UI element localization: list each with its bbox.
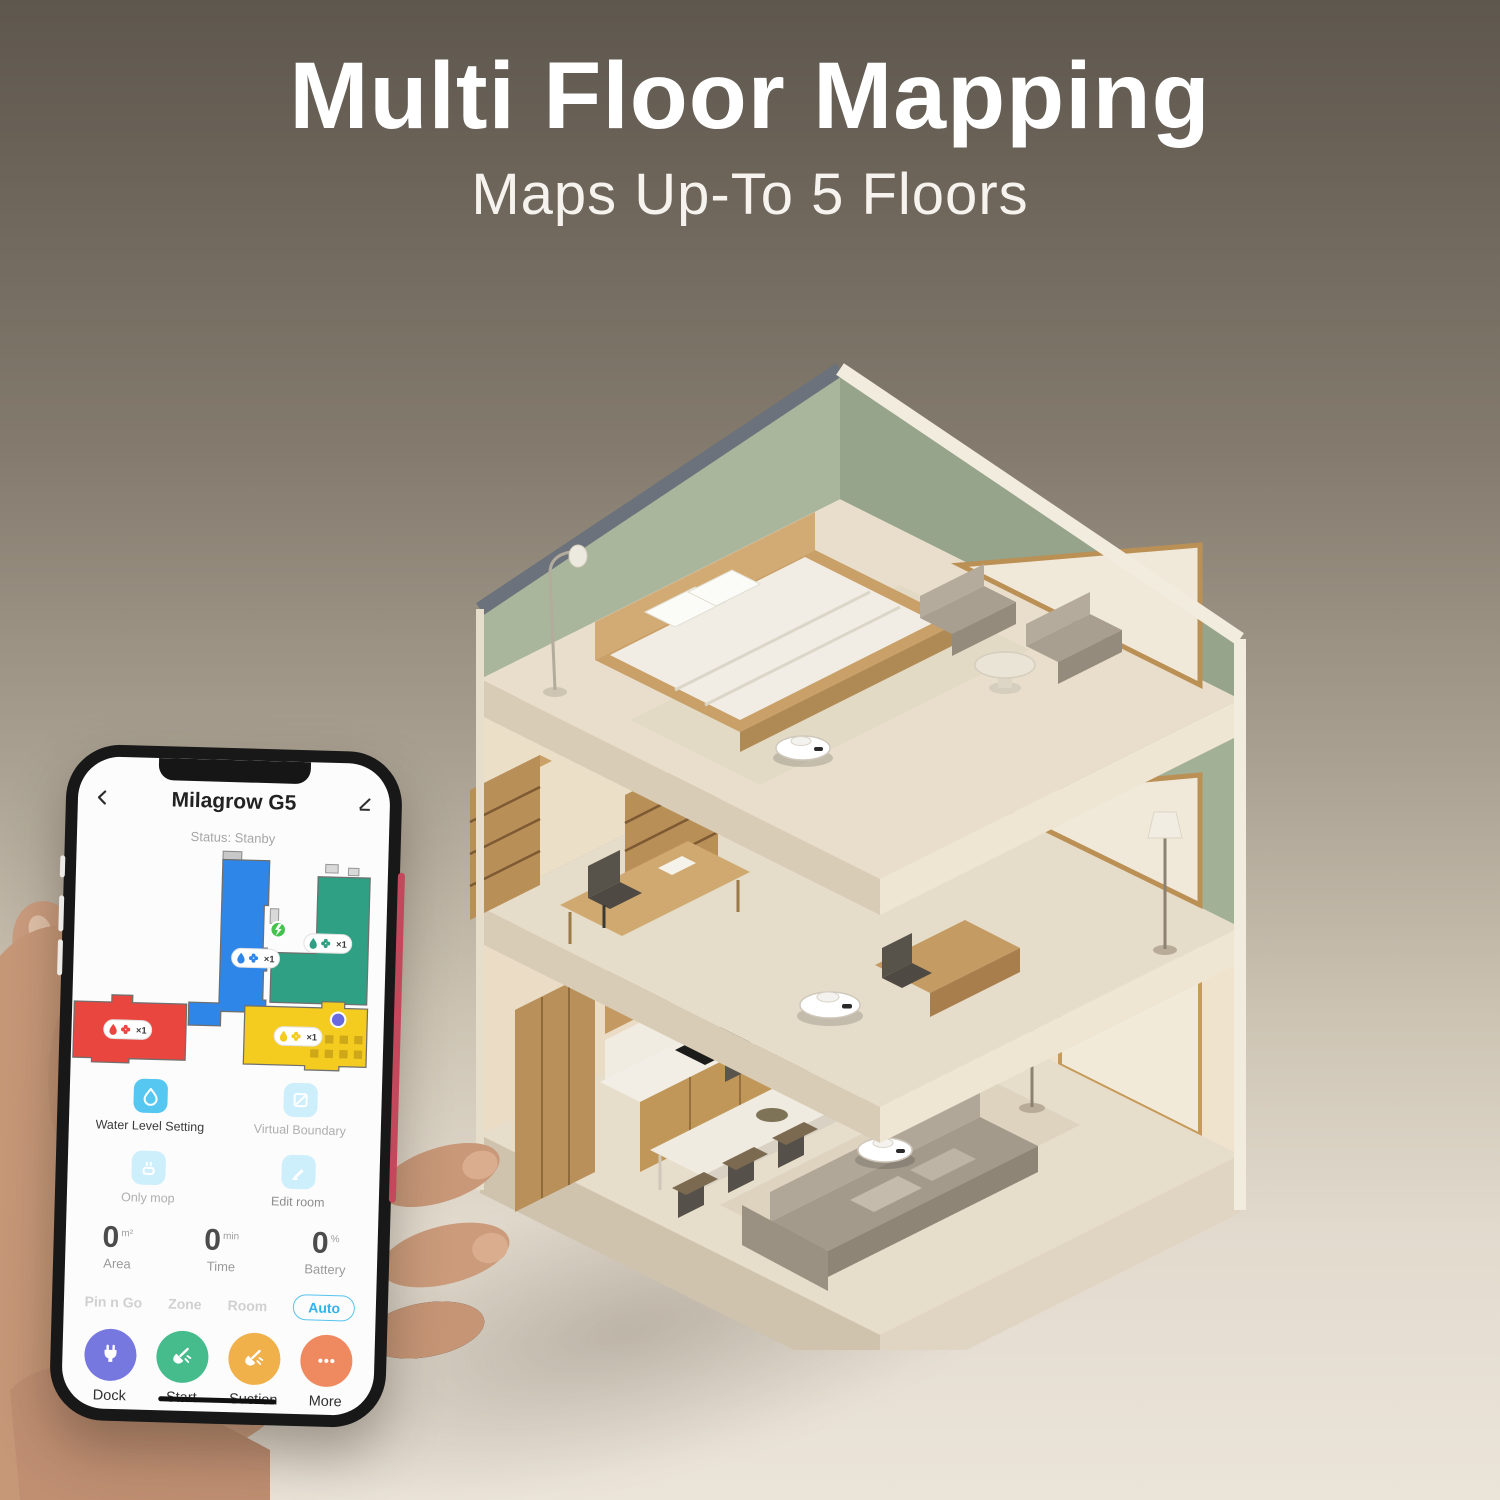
silent-switch[interactable] (60, 855, 66, 877)
back-button[interactable] (94, 788, 112, 806)
floor-map[interactable]: ×1 ×1 ×1 (70, 843, 388, 1077)
room-pill-yellow: ×1 (274, 1026, 322, 1046)
edit-pencil-icon (356, 796, 374, 814)
tab-pin-n-go[interactable]: Pin n Go (84, 1293, 142, 1311)
marketing-banner: Multi Floor Mapping Maps Up-To 5 Floors (0, 0, 1500, 1500)
room-pill-red: ×1 (104, 1020, 152, 1040)
action-edit-room[interactable]: Edit room (223, 1153, 374, 1213)
robot-vacuum-top (773, 736, 833, 767)
headline: Multi Floor Mapping Maps Up-To 5 Floors (0, 42, 1500, 228)
svg-text:×1: ×1 (136, 1025, 147, 1035)
chevron-left-icon (94, 788, 112, 806)
pencil-icon (281, 1154, 316, 1189)
svg-text:×1: ×1 (336, 939, 347, 949)
volume-down-button[interactable] (57, 939, 63, 975)
edit-button[interactable] (356, 796, 374, 814)
room-blue[interactable] (188, 859, 270, 1027)
headline-subtitle: Maps Up-To 5 Floors (0, 161, 1500, 228)
action-water-level[interactable]: Water Level Setting (75, 1077, 226, 1137)
suction-broom-icon (242, 1347, 267, 1372)
more-button[interactable]: More (299, 1334, 353, 1410)
svg-text:×1: ×1 (306, 1032, 317, 1042)
water-drop-icon (133, 1078, 168, 1113)
app-screen: Milagrow G5 Status: Stanby (61, 756, 391, 1416)
stats-row: 0m² Area 0min Time 0% Battery (65, 1220, 378, 1279)
plug-icon (98, 1343, 123, 1368)
room-pill-green: ×1 (304, 934, 352, 954)
phone-notch (159, 758, 312, 784)
tab-zone[interactable]: Zone (168, 1296, 202, 1313)
robot-vacuum-ground (855, 1138, 915, 1169)
room-pill-blue: ×1 (231, 948, 279, 968)
tab-room[interactable]: Room (227, 1297, 267, 1314)
action-grid: Water Level Setting Virtual Boundary Onl… (67, 1073, 383, 1213)
charger-marker (270, 922, 286, 938)
broom-icon (170, 1345, 195, 1370)
device-title: Milagrow G5 (78, 786, 391, 819)
svg-text:×1: ×1 (264, 954, 275, 964)
stat-battery: 0% Battery (273, 1226, 378, 1279)
action-only-mop[interactable]: Only mop (73, 1148, 224, 1208)
headline-title: Multi Floor Mapping (0, 42, 1500, 151)
stat-time: 0min Time (169, 1223, 274, 1276)
action-virtual-boundary[interactable]: Virtual Boundary (225, 1081, 376, 1141)
tab-auto[interactable]: Auto (293, 1294, 356, 1322)
volume-up-button[interactable] (58, 895, 64, 931)
boundary-icon (283, 1083, 318, 1118)
dock-button[interactable]: Dock (83, 1328, 137, 1404)
smartphone: Milagrow G5 Status: Stanby (49, 743, 404, 1428)
mode-tabs: Pin n Go Zone Room Auto (64, 1286, 377, 1325)
stat-area: 0m² Area (65, 1220, 170, 1273)
robot-vacuum-middle (797, 992, 863, 1026)
ellipsis-icon (314, 1349, 339, 1374)
mop-icon (131, 1150, 166, 1185)
robot-marker (331, 1012, 346, 1027)
